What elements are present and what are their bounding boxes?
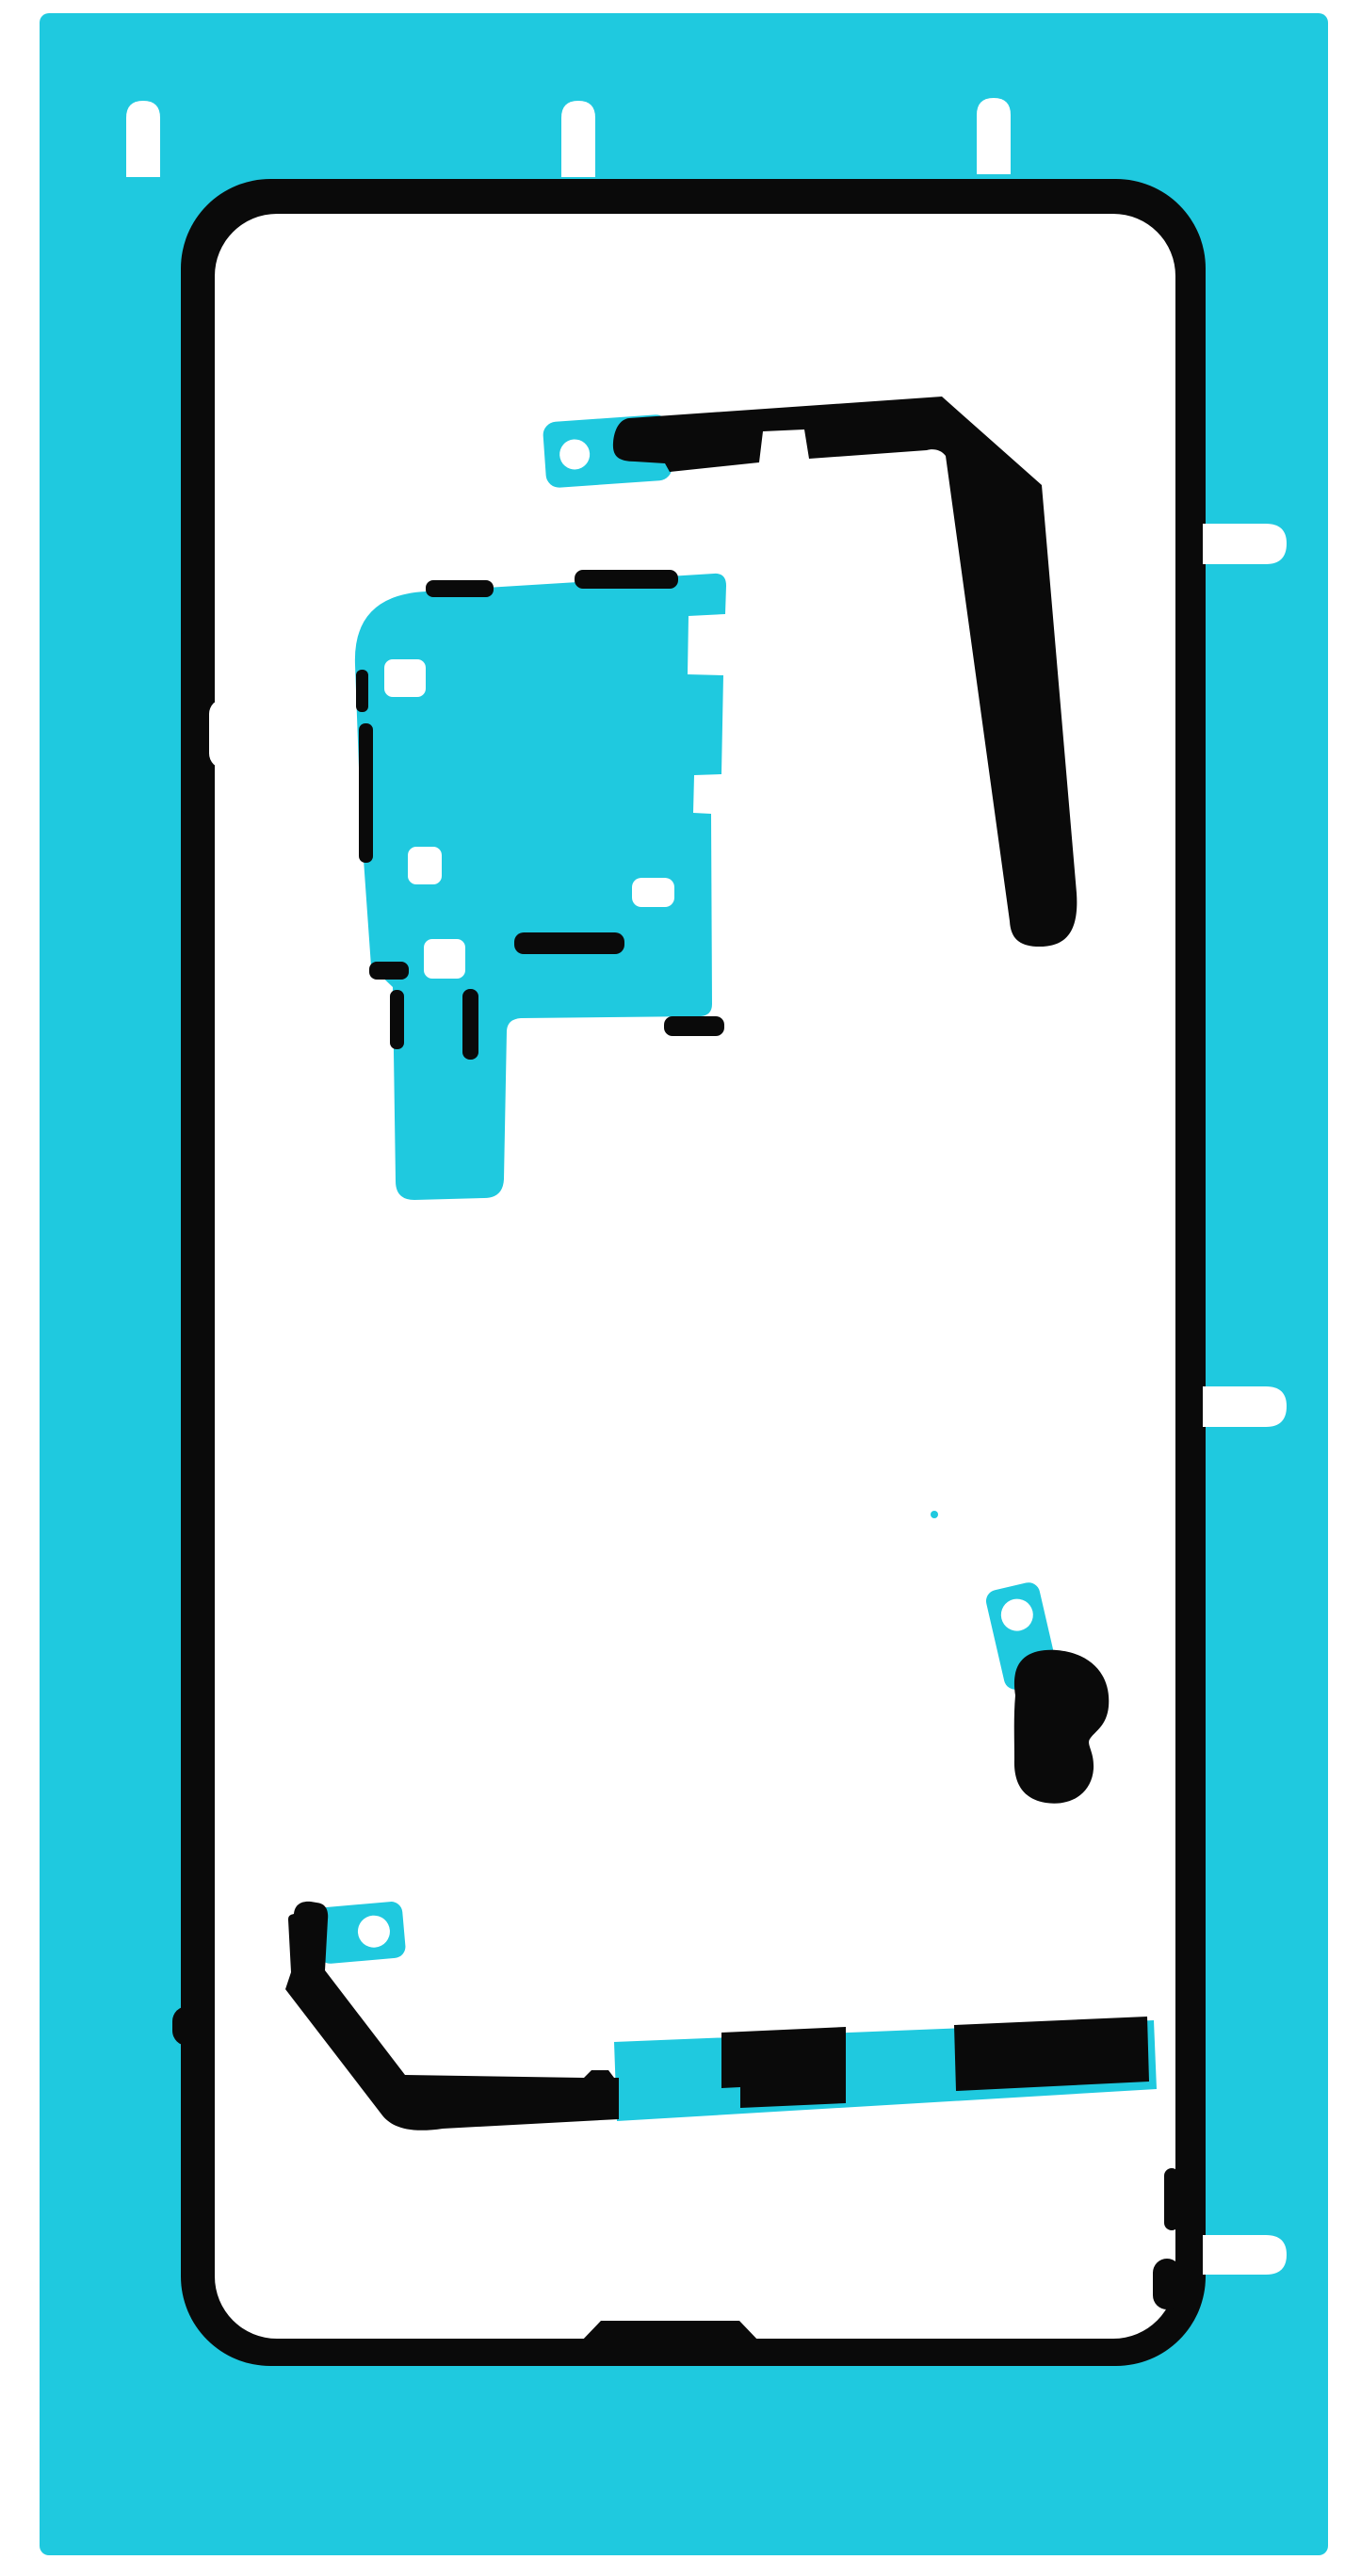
product-photo <box>0 0 1361 2576</box>
right-tab-3 <box>1203 2235 1287 2275</box>
pad-dash-vert-2 <box>462 989 478 1060</box>
bottom-pull-tab <box>316 1901 407 1965</box>
pad-cutout-2 <box>408 847 442 884</box>
pad-dash-mid-left <box>369 962 409 980</box>
pad-cutout-1 <box>384 659 426 697</box>
pad-cutout-3 <box>424 939 465 979</box>
frame-bottom-bump <box>579 2321 761 2343</box>
liner-speck <box>931 1511 938 1518</box>
pad-cutout-4 <box>632 878 674 907</box>
right-tab-2 <box>1203 1386 1287 1427</box>
pad-dash-left-short <box>356 670 368 712</box>
pad-dash-top-right <box>575 570 678 589</box>
pad-dash-vert-1 <box>390 990 404 1049</box>
frame-right-bump-1 <box>1164 2168 1179 2230</box>
pad-bar-right <box>514 932 624 954</box>
bottom-strip-segment-2 <box>954 2017 1149 2091</box>
top-slot-1 <box>126 101 160 177</box>
top-slot-2 <box>561 101 595 177</box>
top-slot-3 <box>977 98 1011 174</box>
frame-right-bump-2 <box>1153 2259 1181 2309</box>
pad-dash-left-long <box>359 723 373 863</box>
right-tab-1 <box>1203 524 1287 564</box>
adhesive-sheet-illustration <box>0 0 1361 2576</box>
pad-dash-top-left <box>426 580 494 597</box>
pad-dash-bottom-right <box>664 1016 724 1036</box>
frame-left-connector-notch <box>209 699 258 769</box>
